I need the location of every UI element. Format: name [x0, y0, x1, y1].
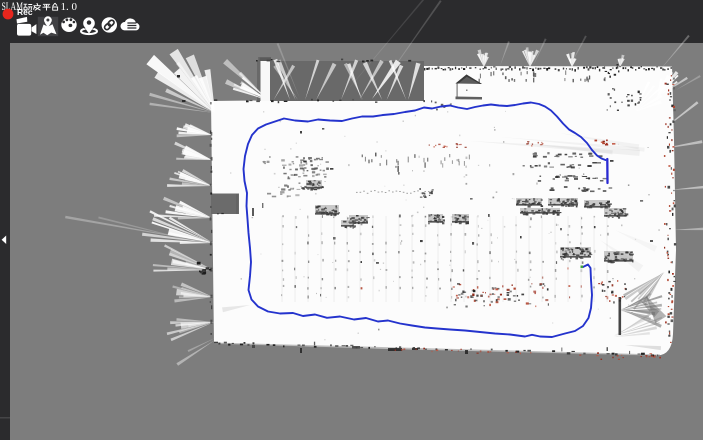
svg-text:Rec: Rec [17, 7, 33, 17]
svg-text:1. 0: 1. 0 [61, 1, 78, 13]
